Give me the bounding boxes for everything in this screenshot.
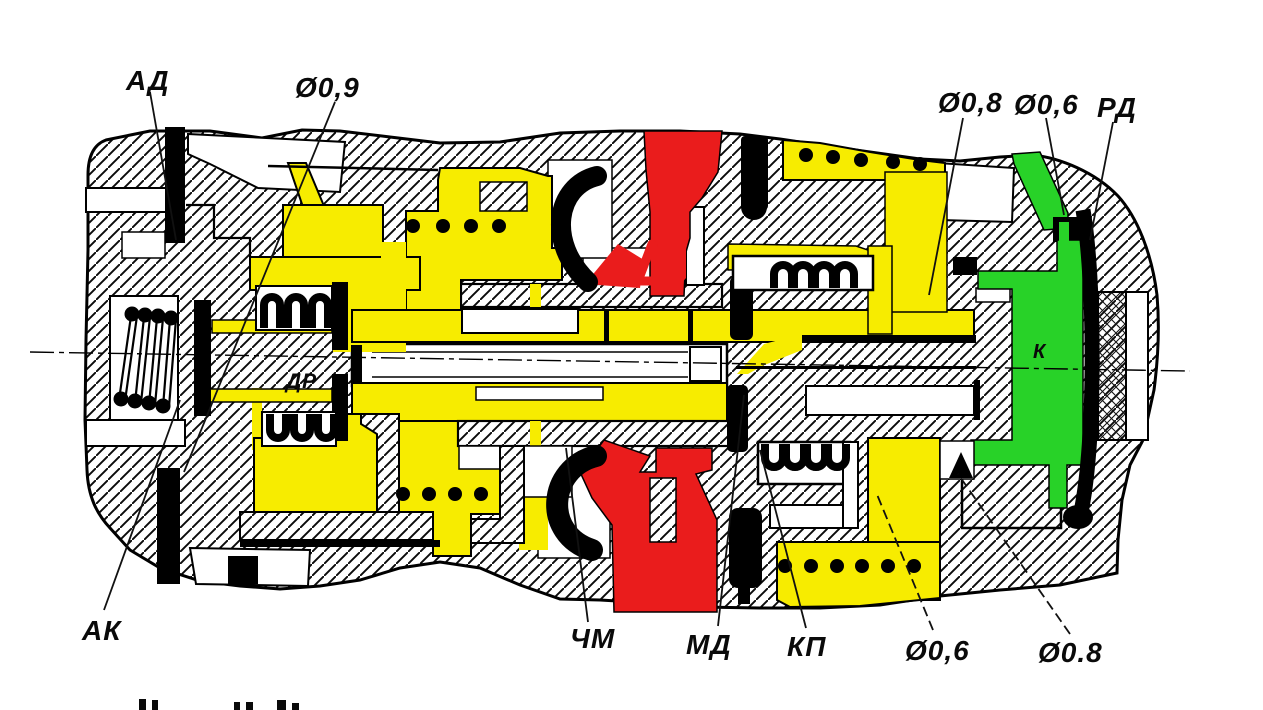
svg-text:Ø0,9: Ø0,9: [295, 72, 360, 103]
svg-text:АК: АК: [81, 615, 122, 646]
svg-text:К: К: [1033, 341, 1047, 363]
svg-text:Ø0,6: Ø0,6: [905, 635, 970, 666]
svg-text:Ø0.8: Ø0.8: [1038, 637, 1103, 668]
svg-text:КП: КП: [787, 631, 826, 662]
svg-text:ДР: ДР: [284, 370, 317, 393]
svg-text:АД: АД: [125, 65, 169, 96]
svg-text:Ø0,6: Ø0,6: [1014, 89, 1079, 120]
svg-text:Ø0,8: Ø0,8: [938, 87, 1003, 118]
svg-text:РД: РД: [1097, 92, 1137, 123]
svg-text:ЧМ: ЧМ: [570, 623, 615, 654]
svg-text:МД: МД: [686, 629, 732, 660]
